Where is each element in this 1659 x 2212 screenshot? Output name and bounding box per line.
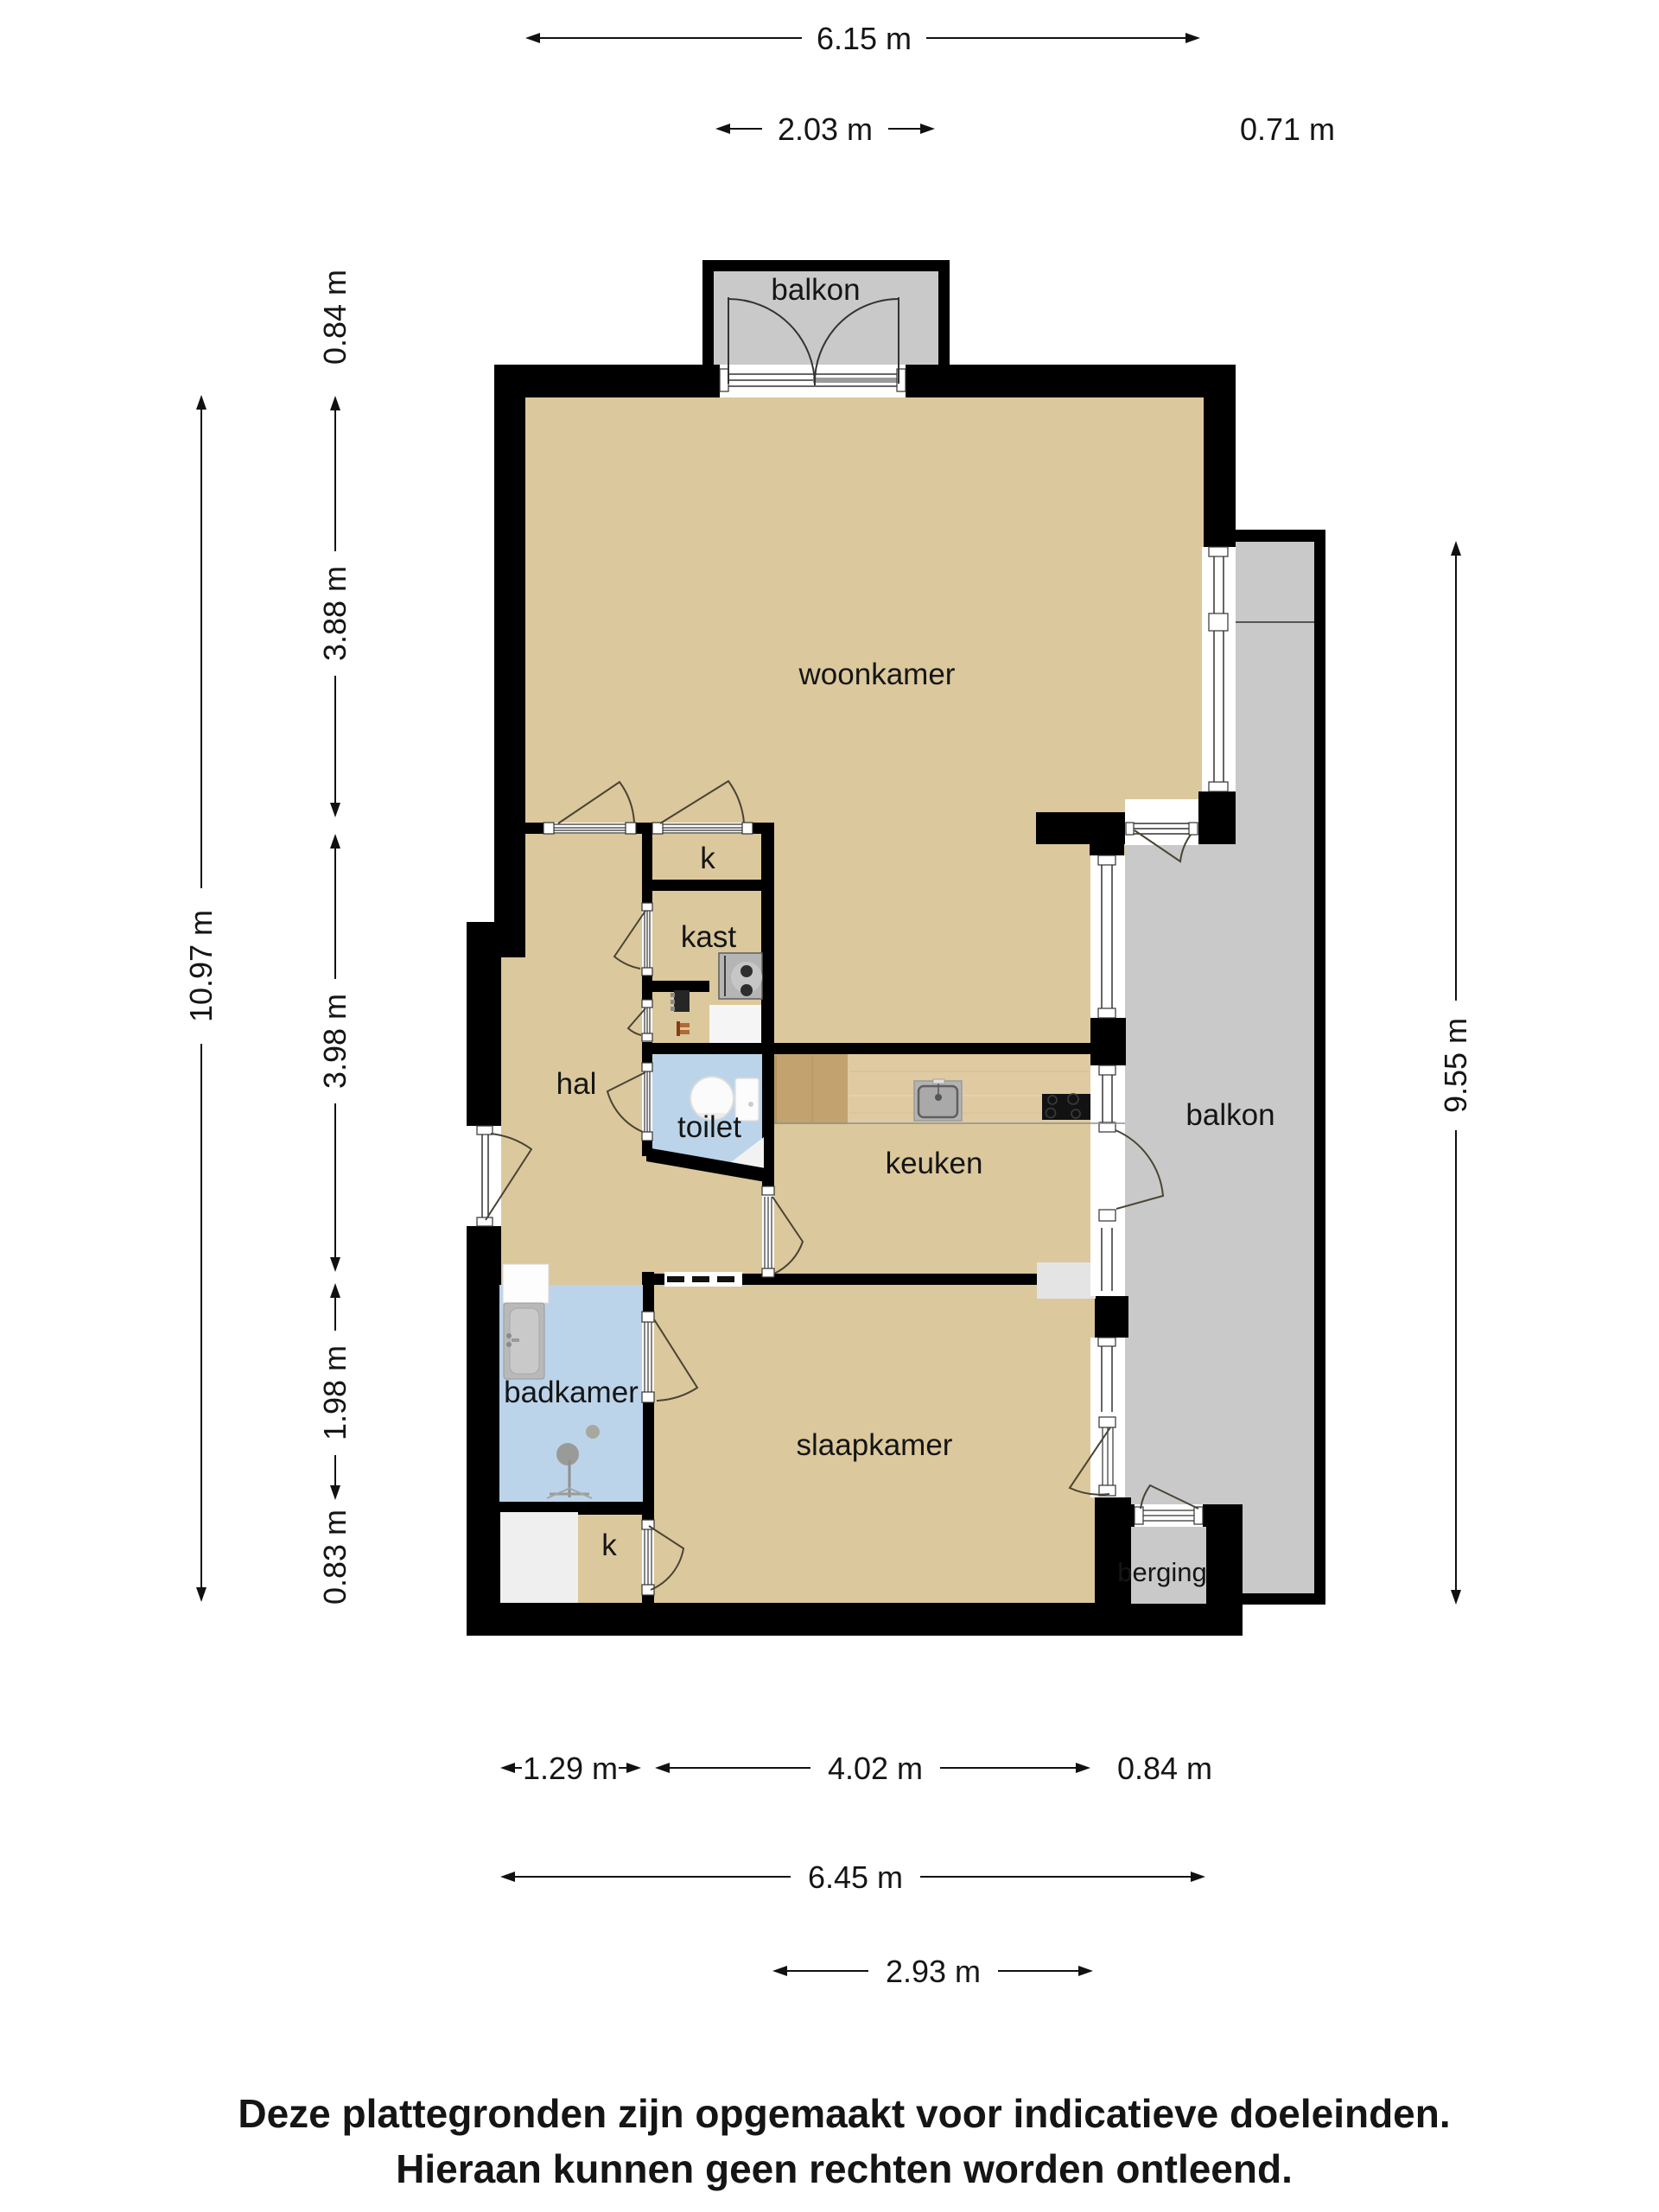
svg-text:slaapkamer: slaapkamer <box>797 1428 953 1462</box>
svg-text:3.98 m: 3.98 m <box>317 994 353 1089</box>
svg-text:k: k <box>700 842 715 875</box>
svg-text:1.29 m: 1.29 m <box>523 1751 618 1786</box>
svg-text:0.84 m: 0.84 m <box>1117 1751 1212 1786</box>
svg-text:0.84 m: 0.84 m <box>317 270 353 365</box>
svg-text:k: k <box>601 1529 617 1562</box>
svg-text:9.55 m: 9.55 m <box>1438 1018 1473 1113</box>
svg-text:toilet: toilet <box>677 1110 741 1144</box>
svg-text:4.02 m: 4.02 m <box>828 1751 923 1786</box>
svg-text:10.97 m: 10.97 m <box>183 910 219 1022</box>
svg-text:hal: hal <box>556 1067 597 1101</box>
svg-text:woonkamer: woonkamer <box>798 658 956 691</box>
svg-text:Deze plattegronden zijn opgema: Deze plattegronden zijn opgemaakt voor i… <box>238 2091 1450 2136</box>
svg-text:balkon: balkon <box>771 273 860 307</box>
svg-text:keuken: keuken <box>886 1147 983 1180</box>
svg-text:0.71 m: 0.71 m <box>1240 111 1335 147</box>
svg-text:6.45 m: 6.45 m <box>808 1859 903 1895</box>
svg-text:1.98 m: 1.98 m <box>317 1345 353 1440</box>
svg-text:kast: kast <box>681 920 736 954</box>
svg-text:2.93 m: 2.93 m <box>886 1954 981 1989</box>
svg-text:badkamer: badkamer <box>504 1376 639 1409</box>
svg-text:0.83 m: 0.83 m <box>317 1510 353 1605</box>
svg-text:3.88 m: 3.88 m <box>317 566 353 661</box>
svg-text:2.03 m: 2.03 m <box>778 111 873 147</box>
svg-text:balkon: balkon <box>1185 1098 1274 1132</box>
svg-text:Hieraan kunnen geen rechten wo: Hieraan kunnen geen rechten worden ontle… <box>396 2146 1293 2191</box>
svg-text:6.15 m: 6.15 m <box>817 21 912 56</box>
svg-text:berging: berging <box>1117 1557 1206 1587</box>
